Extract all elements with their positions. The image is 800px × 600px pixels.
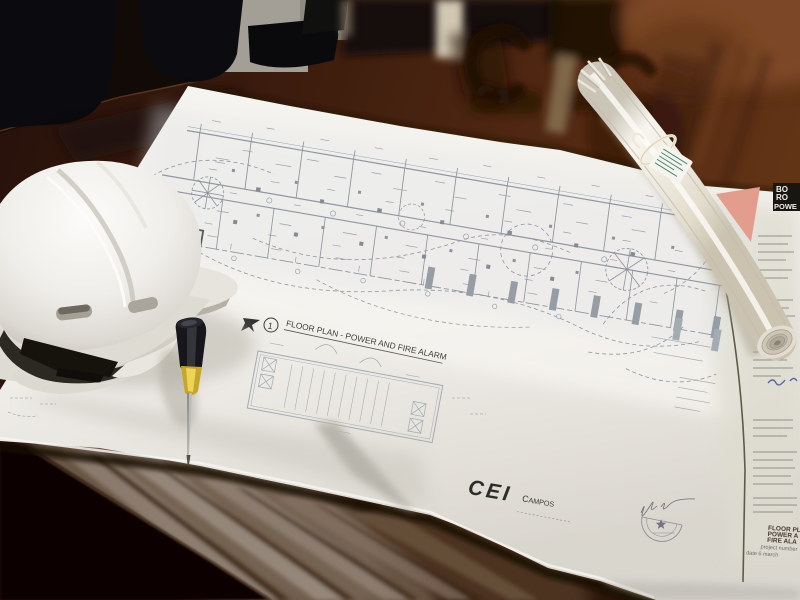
svg-text:POWE: POWE (774, 202, 797, 211)
svg-text:RO: RO (776, 193, 788, 202)
